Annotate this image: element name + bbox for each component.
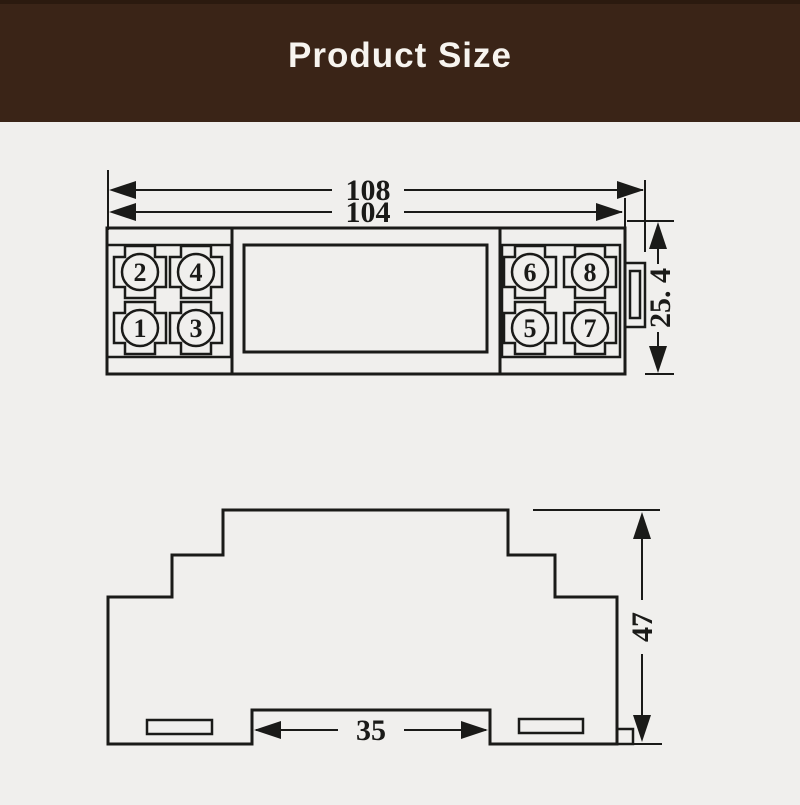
dim-din-slot-width-value: 35	[356, 714, 386, 747]
arrowhead-right	[596, 203, 623, 221]
terminal-2: 2	[114, 246, 166, 298]
dim-din-slot-width: 35	[254, 714, 488, 747]
dimension-drawing: 2 4 1 3 6 8 5 7	[0, 122, 800, 805]
arrowhead-right	[461, 721, 488, 739]
arrowhead-down	[649, 346, 667, 373]
dim-body-width: 104	[109, 196, 623, 229]
profile-outline	[108, 510, 617, 744]
display-window	[244, 245, 487, 352]
terminal-3: 3	[170, 302, 222, 354]
terminal-3-label: 3	[190, 314, 203, 343]
dim-body-width-value: 104	[346, 196, 391, 229]
arrowhead-left	[109, 203, 136, 221]
terminal-5: 5	[504, 302, 556, 354]
dim-depth: 25. 4	[627, 221, 677, 374]
arrowhead-right	[617, 181, 644, 199]
terminal-4-label: 4	[190, 258, 203, 287]
terminal-1-label: 1	[134, 314, 147, 343]
dim-depth-value: 25. 4	[644, 268, 677, 328]
terminal-5-label: 5	[524, 314, 537, 343]
din-clip	[617, 729, 633, 744]
left-foot-slot	[147, 720, 212, 734]
arrowhead-left	[109, 181, 136, 199]
arrowhead-up	[649, 222, 667, 249]
terminal-6-label: 6	[524, 258, 537, 287]
arrowhead-up	[633, 512, 651, 539]
top-view: 2 4 1 3 6 8 5 7	[107, 170, 677, 374]
right-foot-slot	[519, 719, 583, 733]
side-view: 47 35	[108, 510, 662, 747]
dim-height: 47	[533, 510, 662, 744]
terminal-7-label: 7	[584, 314, 597, 343]
terminal-1: 1	[114, 302, 166, 354]
side-tab-inner	[630, 271, 640, 318]
arrowhead-left	[254, 721, 281, 739]
terminal-8: 8	[564, 246, 616, 298]
terminal-2-label: 2	[134, 258, 147, 287]
terminal-8-label: 8	[584, 258, 597, 287]
arrowhead-down	[633, 715, 651, 742]
terminal-6: 6	[504, 246, 556, 298]
page-header: Product Size	[0, 0, 800, 122]
terminal-4: 4	[170, 246, 222, 298]
terminal-7: 7	[564, 302, 616, 354]
page-title: Product Size	[288, 36, 512, 76]
dim-height-value: 47	[626, 612, 659, 642]
